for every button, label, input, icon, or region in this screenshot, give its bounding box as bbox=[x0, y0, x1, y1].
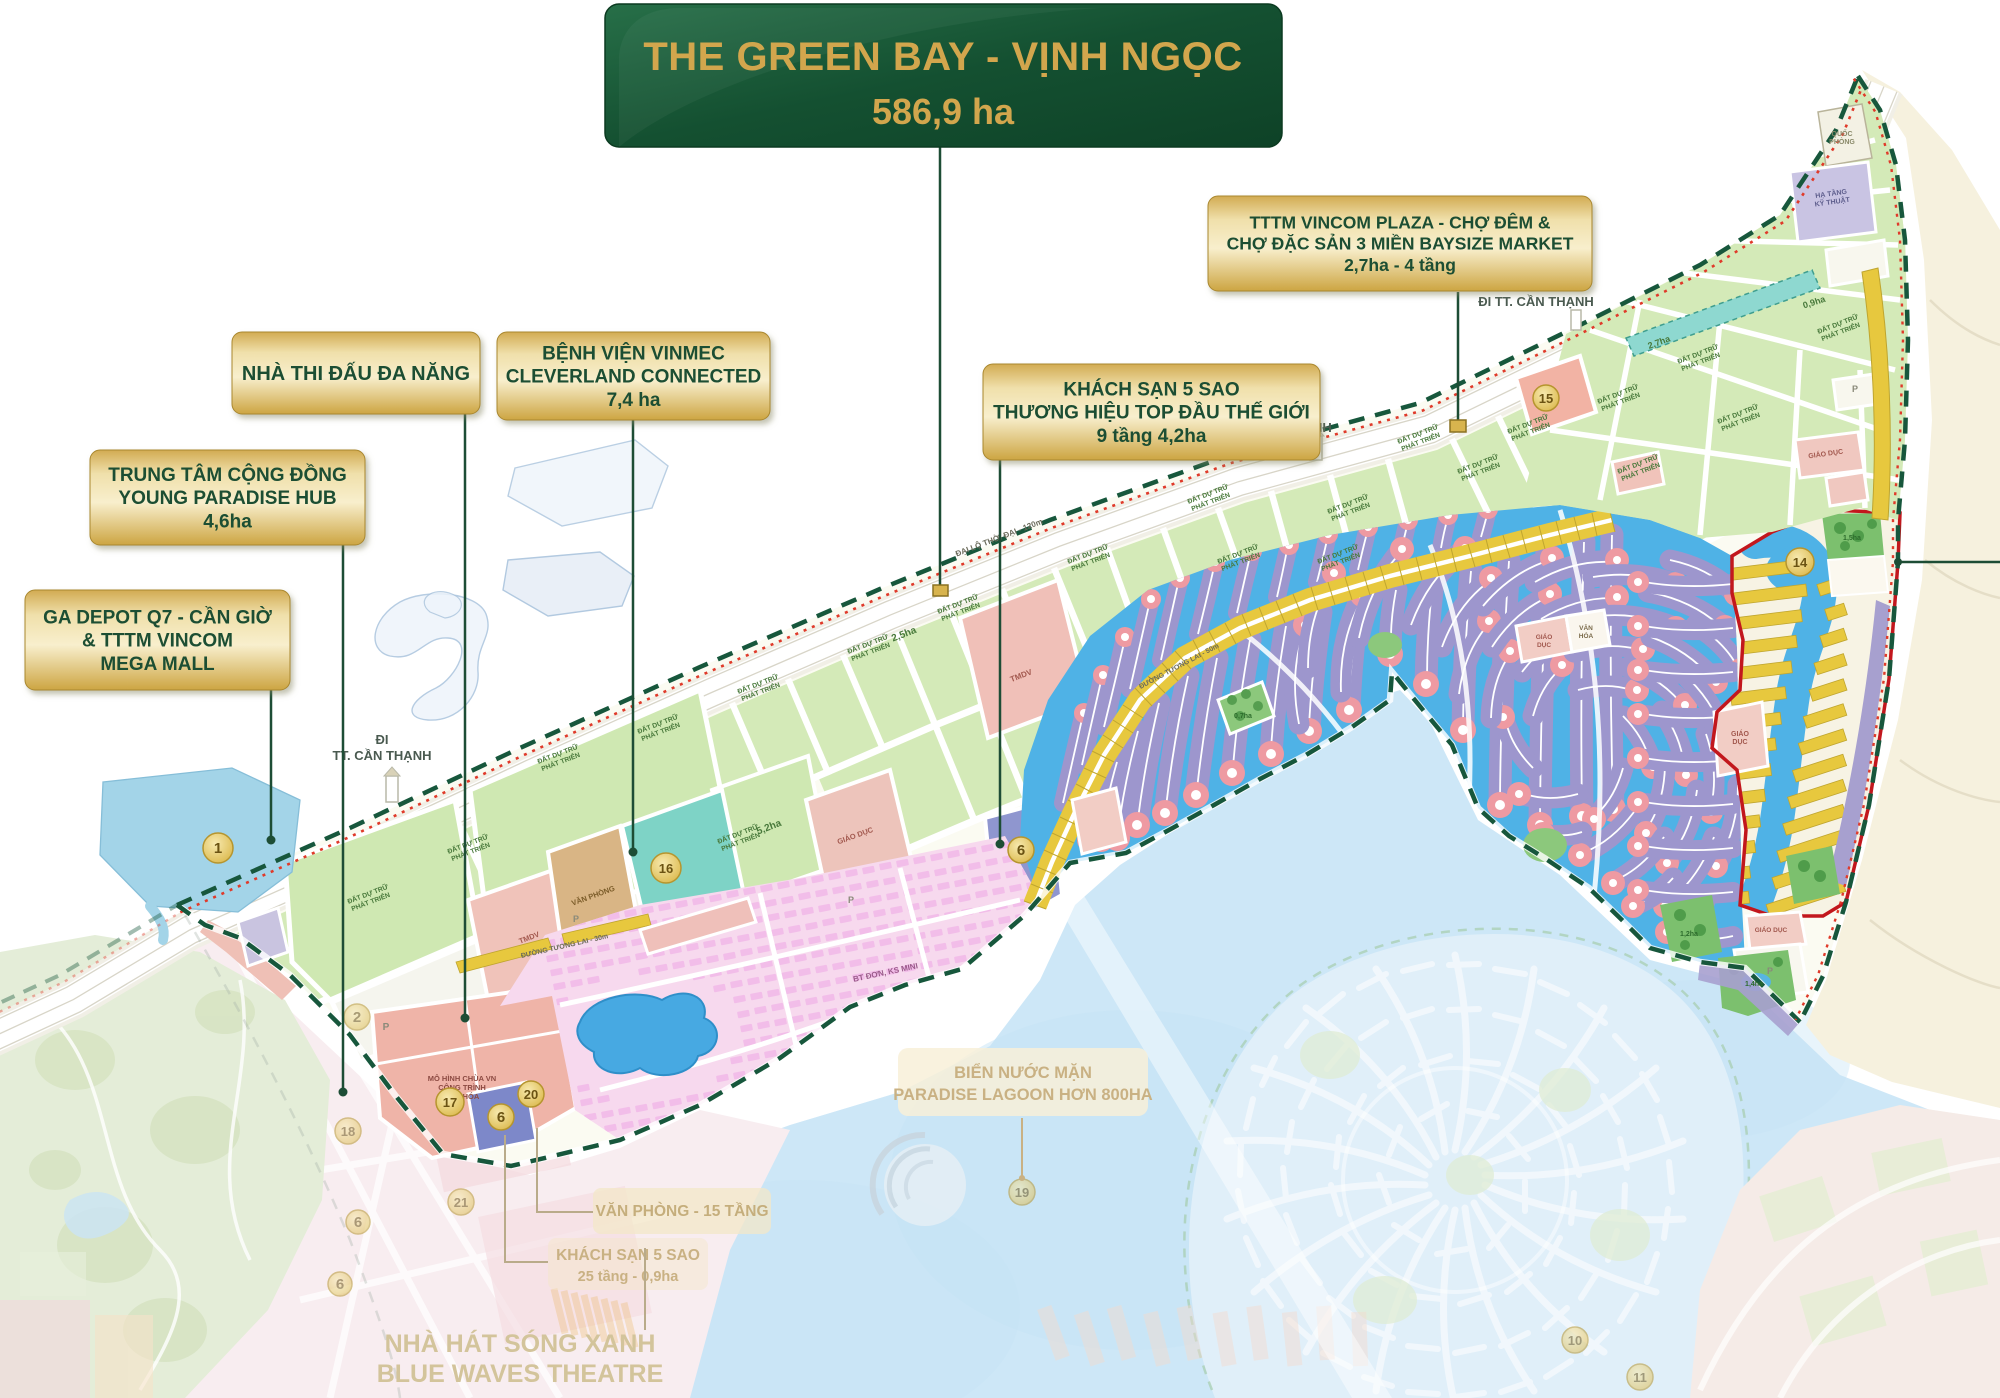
svg-text:KHÁCH SẠN 5 SAO: KHÁCH SẠN 5 SAO bbox=[556, 1247, 700, 1264]
svg-text:P: P bbox=[1852, 384, 1858, 394]
svg-text:YOUNG PARADISE HUB: YOUNG PARADISE HUB bbox=[118, 488, 336, 509]
svg-text:MEGA MALL: MEGA MALL bbox=[100, 654, 215, 675]
svg-text:2,7ha - 4 tầng: 2,7ha - 4 tầng bbox=[1344, 255, 1456, 275]
svg-text:THƯƠNG HIỆU TOP ĐẦU THẾ GIỚI: THƯƠNG HIỆU TOP ĐẦU THẾ GIỚI bbox=[993, 402, 1310, 424]
svg-text:4,6ha: 4,6ha bbox=[203, 511, 252, 532]
svg-text:QUỐCPHÒNG: QUỐCPHÒNG bbox=[1829, 128, 1855, 146]
svg-text:18: 18 bbox=[341, 1124, 355, 1139]
svg-text:VĂNHÓA: VĂNHÓA bbox=[1579, 623, 1594, 640]
svg-text:P: P bbox=[848, 895, 854, 905]
svg-text:BỆNH VIỆN VINMEC: BỆNH VIỆN VINMEC bbox=[542, 343, 725, 365]
svg-text:GIÁODỤC: GIÁODỤC bbox=[1731, 729, 1749, 746]
svg-text:& TTTM VINCOM: & TTTM VINCOM bbox=[82, 631, 233, 652]
svg-text:21: 21 bbox=[454, 1195, 468, 1210]
svg-text:BIỂN NƯỚC MẶN: BIỂN NƯỚC MẶN bbox=[954, 1063, 1092, 1082]
svg-text:15: 15 bbox=[1539, 391, 1553, 406]
svg-text:9 tầng 4,2ha: 9 tầng 4,2ha bbox=[1097, 426, 1207, 447]
svg-text:1,4ha: 1,4ha bbox=[1745, 981, 1763, 988]
svg-text:6: 6 bbox=[1017, 842, 1025, 859]
svg-text:PARADISE LAGOON HƠN 800HA: PARADISE LAGOON HƠN 800HA bbox=[893, 1086, 1153, 1104]
svg-text:0,7ha: 0,7ha bbox=[1234, 713, 1252, 720]
svg-text:25 tầng - 0,9ha: 25 tầng - 0,9ha bbox=[578, 1269, 680, 1285]
svg-text:ĐI TT. CẦN THẠNH: ĐI TT. CẦN THẠNH bbox=[1478, 294, 1594, 309]
svg-text:TTTM VINCOM PLAZA - CHỢ ĐÊM &: TTTM VINCOM PLAZA - CHỢ ĐÊM & bbox=[1249, 211, 1550, 232]
svg-text:GIÁO DỤC: GIÁO DỤC bbox=[1755, 925, 1788, 934]
svg-text:16: 16 bbox=[659, 861, 673, 876]
svg-text:1,2ha: 1,2ha bbox=[1680, 931, 1698, 938]
svg-text:KHÁCH SẠN 5 SAO: KHÁCH SẠN 5 SAO bbox=[1063, 379, 1239, 401]
svg-text:2: 2 bbox=[353, 1009, 361, 1026]
svg-text:6: 6 bbox=[336, 1276, 344, 1293]
svg-text:BLUE WAVES THEATRE: BLUE WAVES THEATRE bbox=[377, 1360, 664, 1388]
svg-text:NHÀ HÁT SÓNG XANH: NHÀ HÁT SÓNG XANH bbox=[385, 1328, 656, 1358]
svg-text:P: P bbox=[573, 914, 579, 924]
svg-text:CLEVERLAND CONNECTED: CLEVERLAND CONNECTED bbox=[506, 367, 761, 388]
svg-text:1,5ha: 1,5ha bbox=[1843, 535, 1861, 542]
svg-text:ĐI: ĐI bbox=[376, 732, 389, 747]
svg-text:P: P bbox=[1767, 966, 1773, 976]
svg-text:6: 6 bbox=[354, 1214, 362, 1231]
svg-text:NHÀ THI ĐẤU ĐA NĂNG: NHÀ THI ĐẤU ĐA NĂNG bbox=[242, 362, 470, 385]
svg-text:THE GREEN BAY - VỊNH NGỌC: THE GREEN BAY - VỊNH NGỌC bbox=[643, 35, 1242, 79]
svg-text:P: P bbox=[383, 1022, 390, 1033]
svg-text:VĂN PHÒNG - 15 TẦNG: VĂN PHÒNG - 15 TẦNG bbox=[595, 1202, 768, 1220]
svg-text:10: 10 bbox=[1568, 1333, 1582, 1348]
svg-text:GA DEPOT Q7 - CẦN GIỜ: GA DEPOT Q7 - CẦN GIỜ bbox=[43, 607, 273, 629]
svg-text:1: 1 bbox=[214, 840, 222, 857]
svg-text:17: 17 bbox=[443, 1095, 457, 1110]
svg-text:20: 20 bbox=[524, 1087, 538, 1102]
svg-text:11: 11 bbox=[1633, 1370, 1647, 1385]
svg-text:7,4 ha: 7,4 ha bbox=[607, 390, 661, 411]
svg-text:TRUNG TÂM CỘNG ĐỒNG: TRUNG TÂM CỘNG ĐỒNG bbox=[108, 464, 347, 486]
svg-text:14: 14 bbox=[1793, 555, 1808, 570]
svg-text:19: 19 bbox=[1015, 1185, 1029, 1200]
svg-text:GIÁODỤC: GIÁODỤC bbox=[1536, 632, 1553, 649]
svg-text:TT. CẦN THẠNH: TT. CẦN THẠNH bbox=[333, 748, 432, 763]
svg-text:CHỢ ĐẶC SẢN 3 MIỀN BAYSIZE MAR: CHỢ ĐẶC SẢN 3 MIỀN BAYSIZE MARKET bbox=[1227, 233, 1574, 254]
svg-text:586,9 ha: 586,9 ha bbox=[872, 91, 1015, 132]
svg-text:6: 6 bbox=[497, 1109, 505, 1126]
